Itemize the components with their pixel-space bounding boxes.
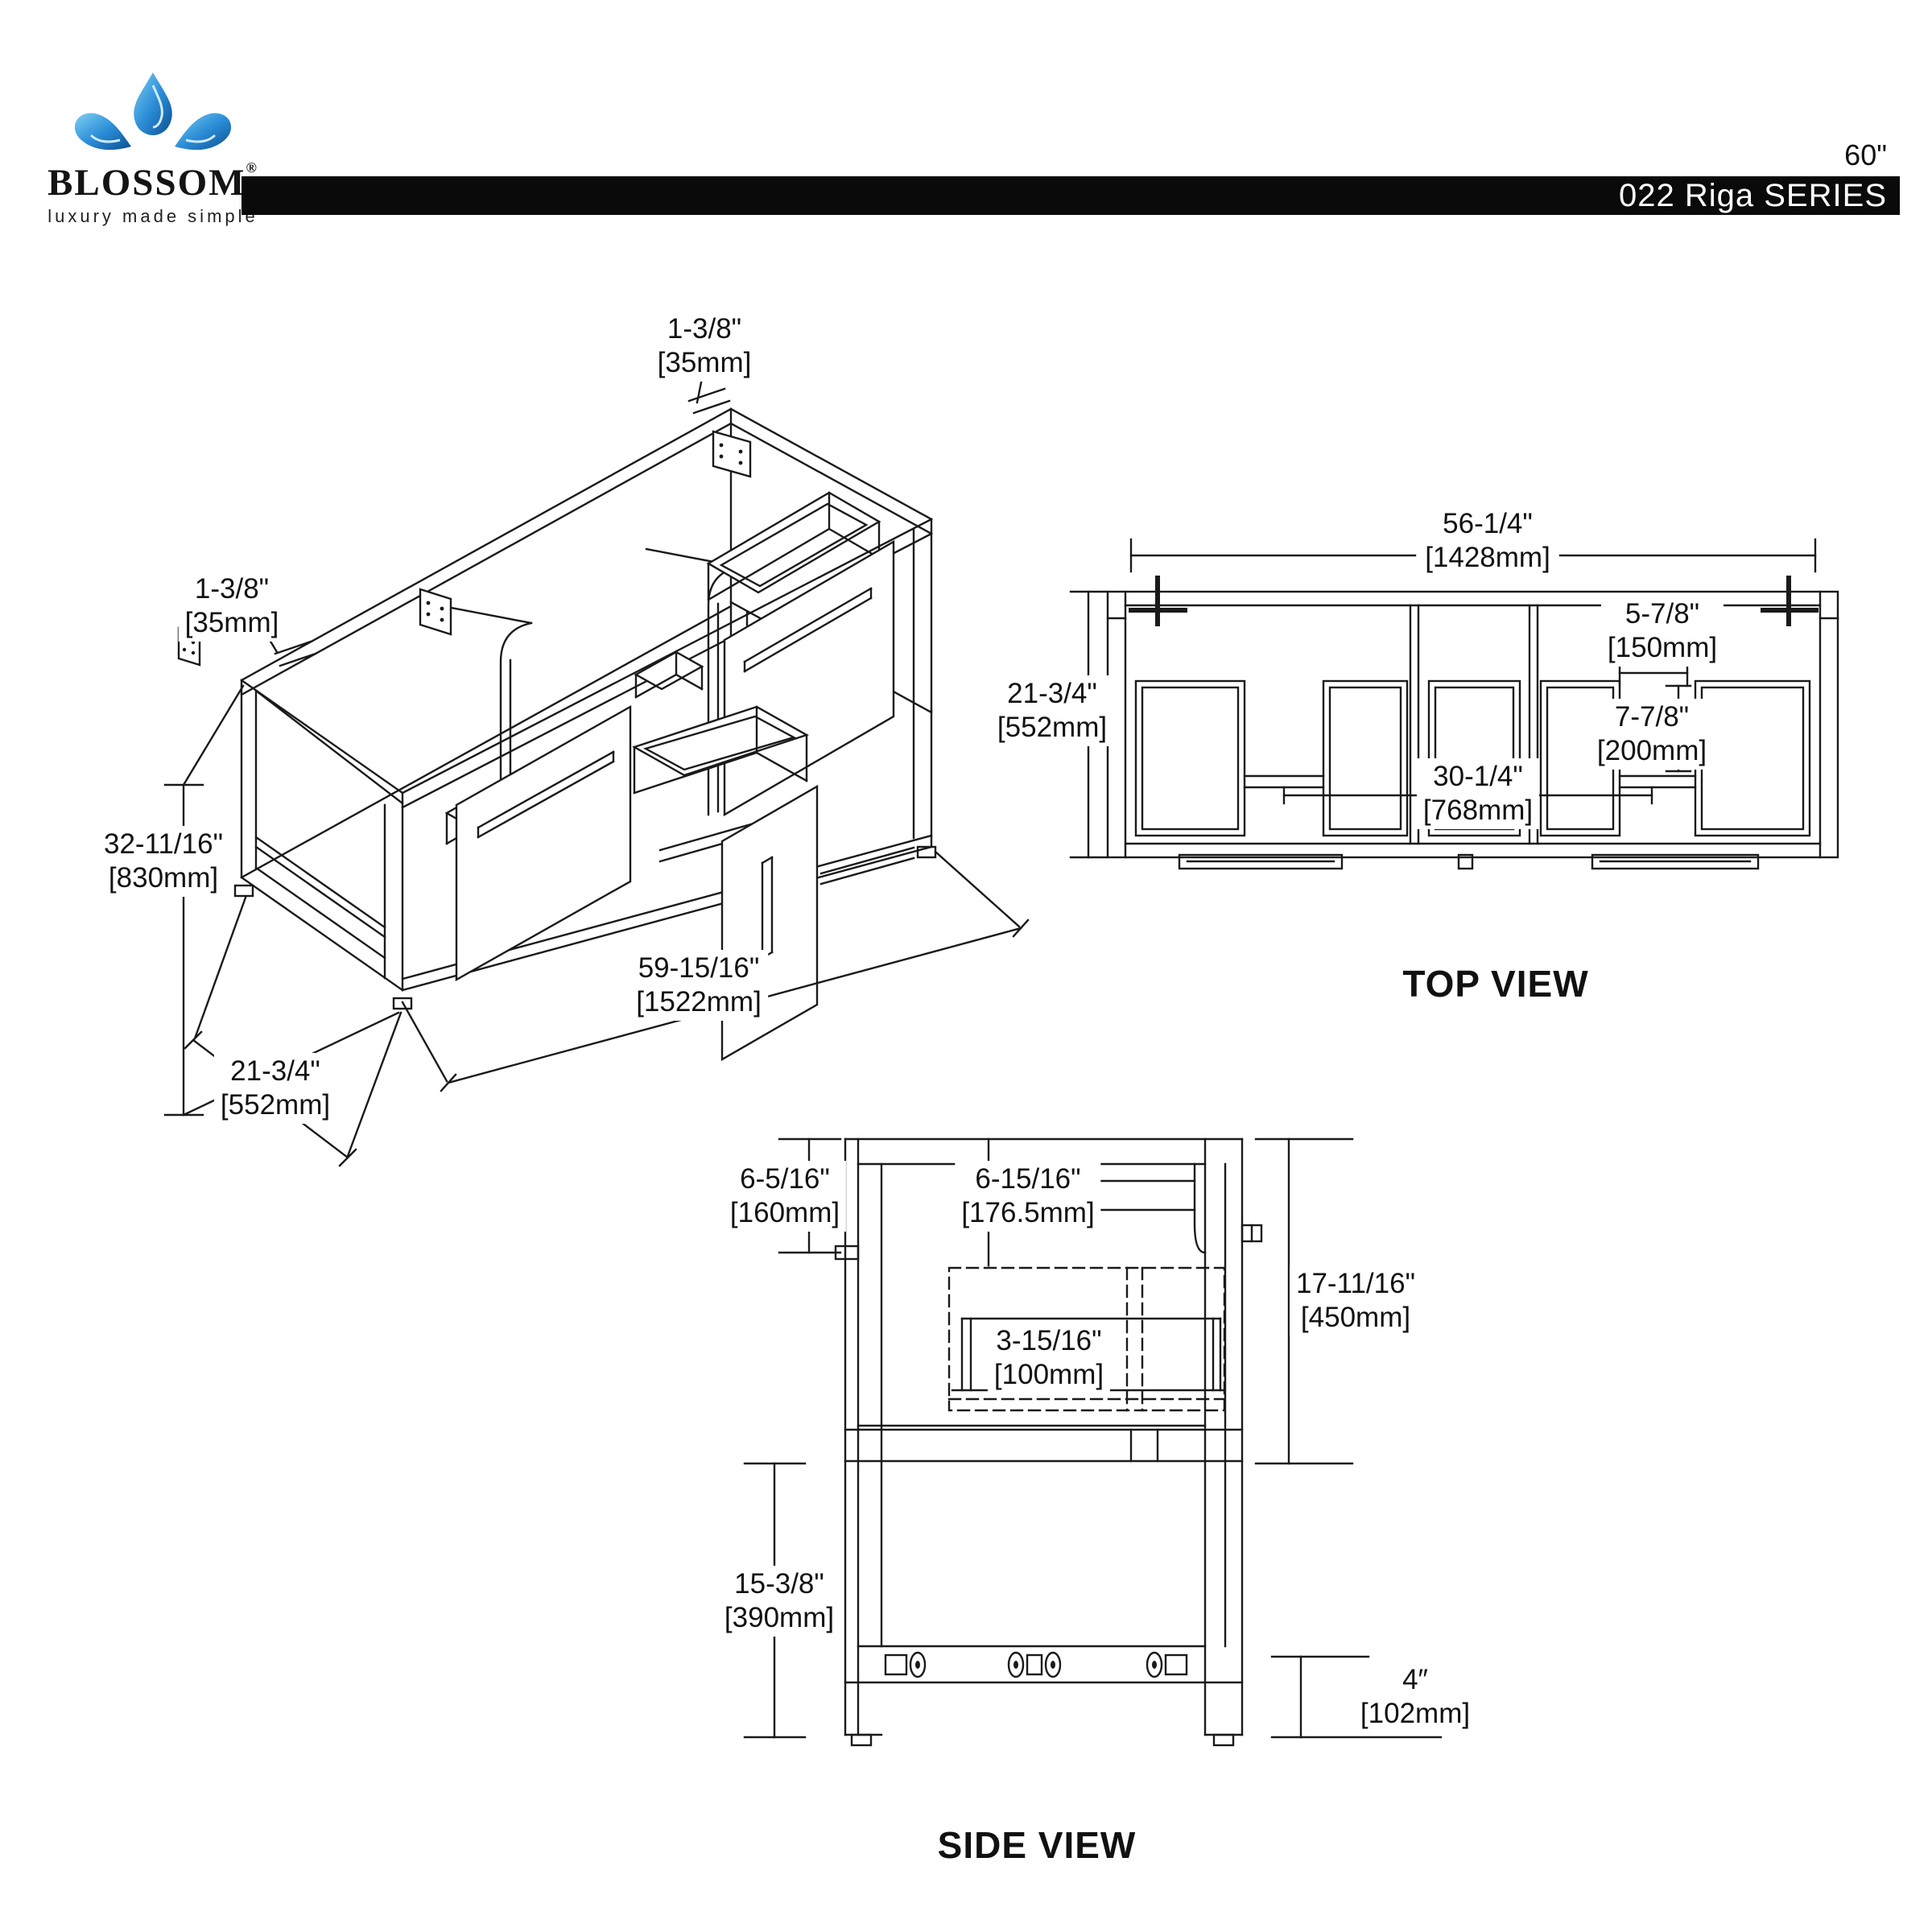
- side-view-label: SIDE VIEW: [938, 1823, 1137, 1867]
- side-dim-backsplash: 6-5/16"[160mm]: [724, 1161, 846, 1232]
- spec-sheet-page: BLOSSOM® luxury made simple 60" 022 Riga…: [0, 0, 1932, 1932]
- iso-dim-depth: 21-3/4"[552mm]: [214, 1053, 336, 1124]
- side-dim-drawer-height: 3-15/16"[100mm]: [988, 1323, 1110, 1393]
- side-dim-toe-height: 4″[102mm]: [1354, 1662, 1476, 1732]
- iso-dim-width: 59-15/16"[1522mm]: [630, 950, 768, 1021]
- top-dim-sink-gap: 5-7/8"[150mm]: [1601, 596, 1724, 667]
- top-dim-sink-depth: 7-7/8"[200mm]: [1591, 699, 1713, 770]
- corner-bracket-icon: [713, 431, 750, 477]
- top-dim-center-span: 30-1/4"[768mm]: [1417, 758, 1539, 829]
- corner-bracket-icon: [420, 589, 451, 634]
- iso-dim-height: 32-11/16"[830mm]: [97, 826, 229, 897]
- iso-dim-top-thickness: 1-3/8"[35mm]: [651, 311, 758, 382]
- side-dim-cabinet-height: 17-11/16"[450mm]: [1290, 1265, 1422, 1336]
- side-dim-leg-space: 15-3/8"[390mm]: [718, 1566, 840, 1637]
- technical-drawing: [0, 0, 1932, 1932]
- top-view-label: TOP VIEW: [1402, 962, 1588, 1005]
- top-dim-depth: 21-3/4"[552mm]: [991, 675, 1113, 746]
- top-dim-width: 56-1/4"[1428mm]: [1418, 506, 1557, 576]
- isometric-view-drawing: [165, 378, 1028, 1166]
- side-dim-top-inset: 6-15/16"[176.5mm]: [955, 1161, 1100, 1232]
- iso-dim-left-thickness: 1-3/8"[35mm]: [179, 571, 286, 642]
